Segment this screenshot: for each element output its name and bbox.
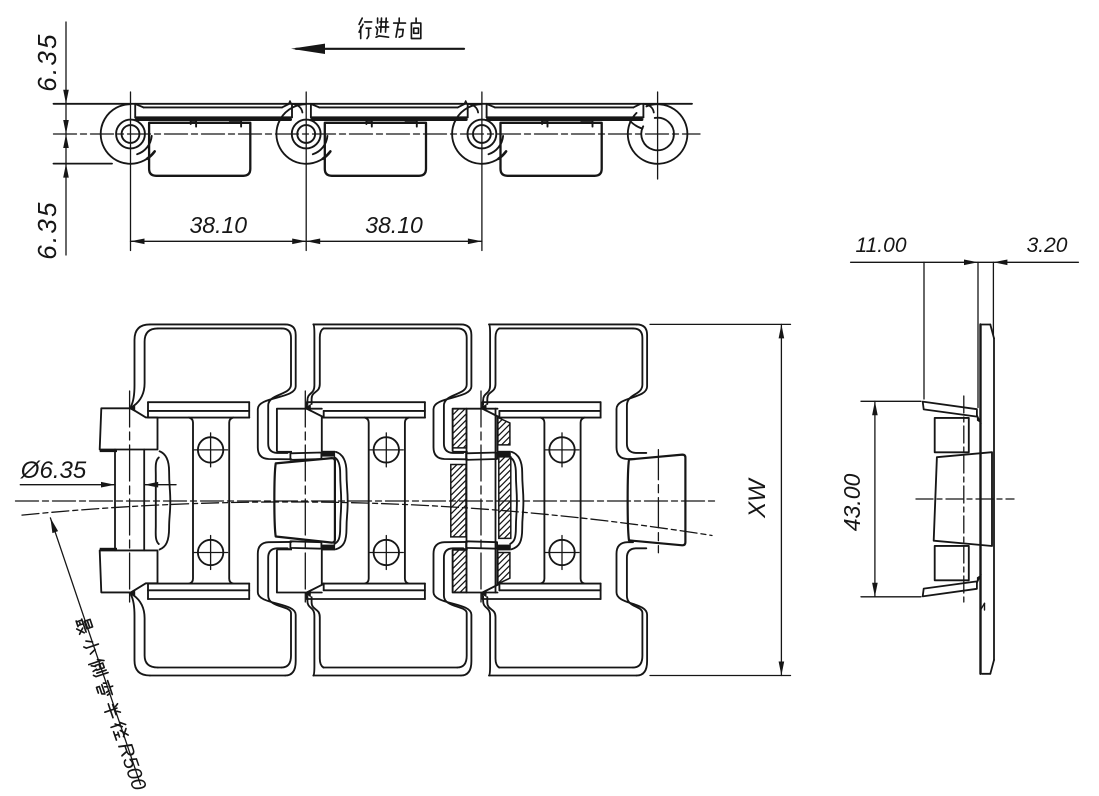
svg-text:XW: XW (744, 477, 771, 519)
svg-text:38.10: 38.10 (190, 212, 248, 238)
svg-text:3.20: 3.20 (1027, 234, 1068, 257)
svg-text:11.00: 11.00 (856, 234, 907, 257)
svg-text:43.00: 43.00 (839, 474, 865, 532)
svg-text:38.10: 38.10 (365, 212, 423, 238)
svg-text:Ø6.35: Ø6.35 (20, 457, 87, 484)
svg-text:6.35: 6.35 (32, 200, 62, 259)
svg-text:6.35: 6.35 (32, 32, 62, 91)
